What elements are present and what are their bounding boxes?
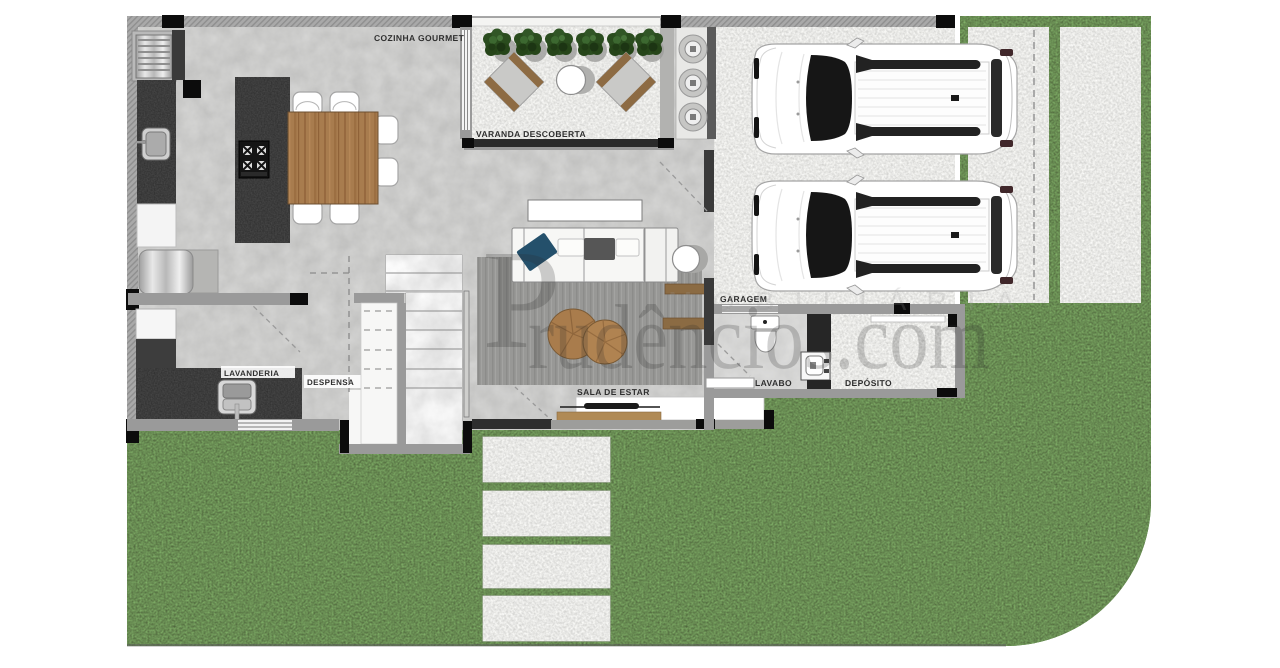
svg-text:VARANDA DESCOBERTA: VARANDA DESCOBERTA [476, 129, 586, 139]
svg-text:IMOBILIÁRIA: IMOBILIÁRIA [640, 286, 1035, 316]
svg-text:SALA DE ESTAR: SALA DE ESTAR [577, 387, 650, 397]
svg-text:LAVANDERIA: LAVANDERIA [224, 369, 279, 378]
svg-text:COZINHA GOURMET: COZINHA GOURMET [374, 33, 465, 43]
svg-text:DESPENSA: DESPENSA [307, 378, 354, 387]
